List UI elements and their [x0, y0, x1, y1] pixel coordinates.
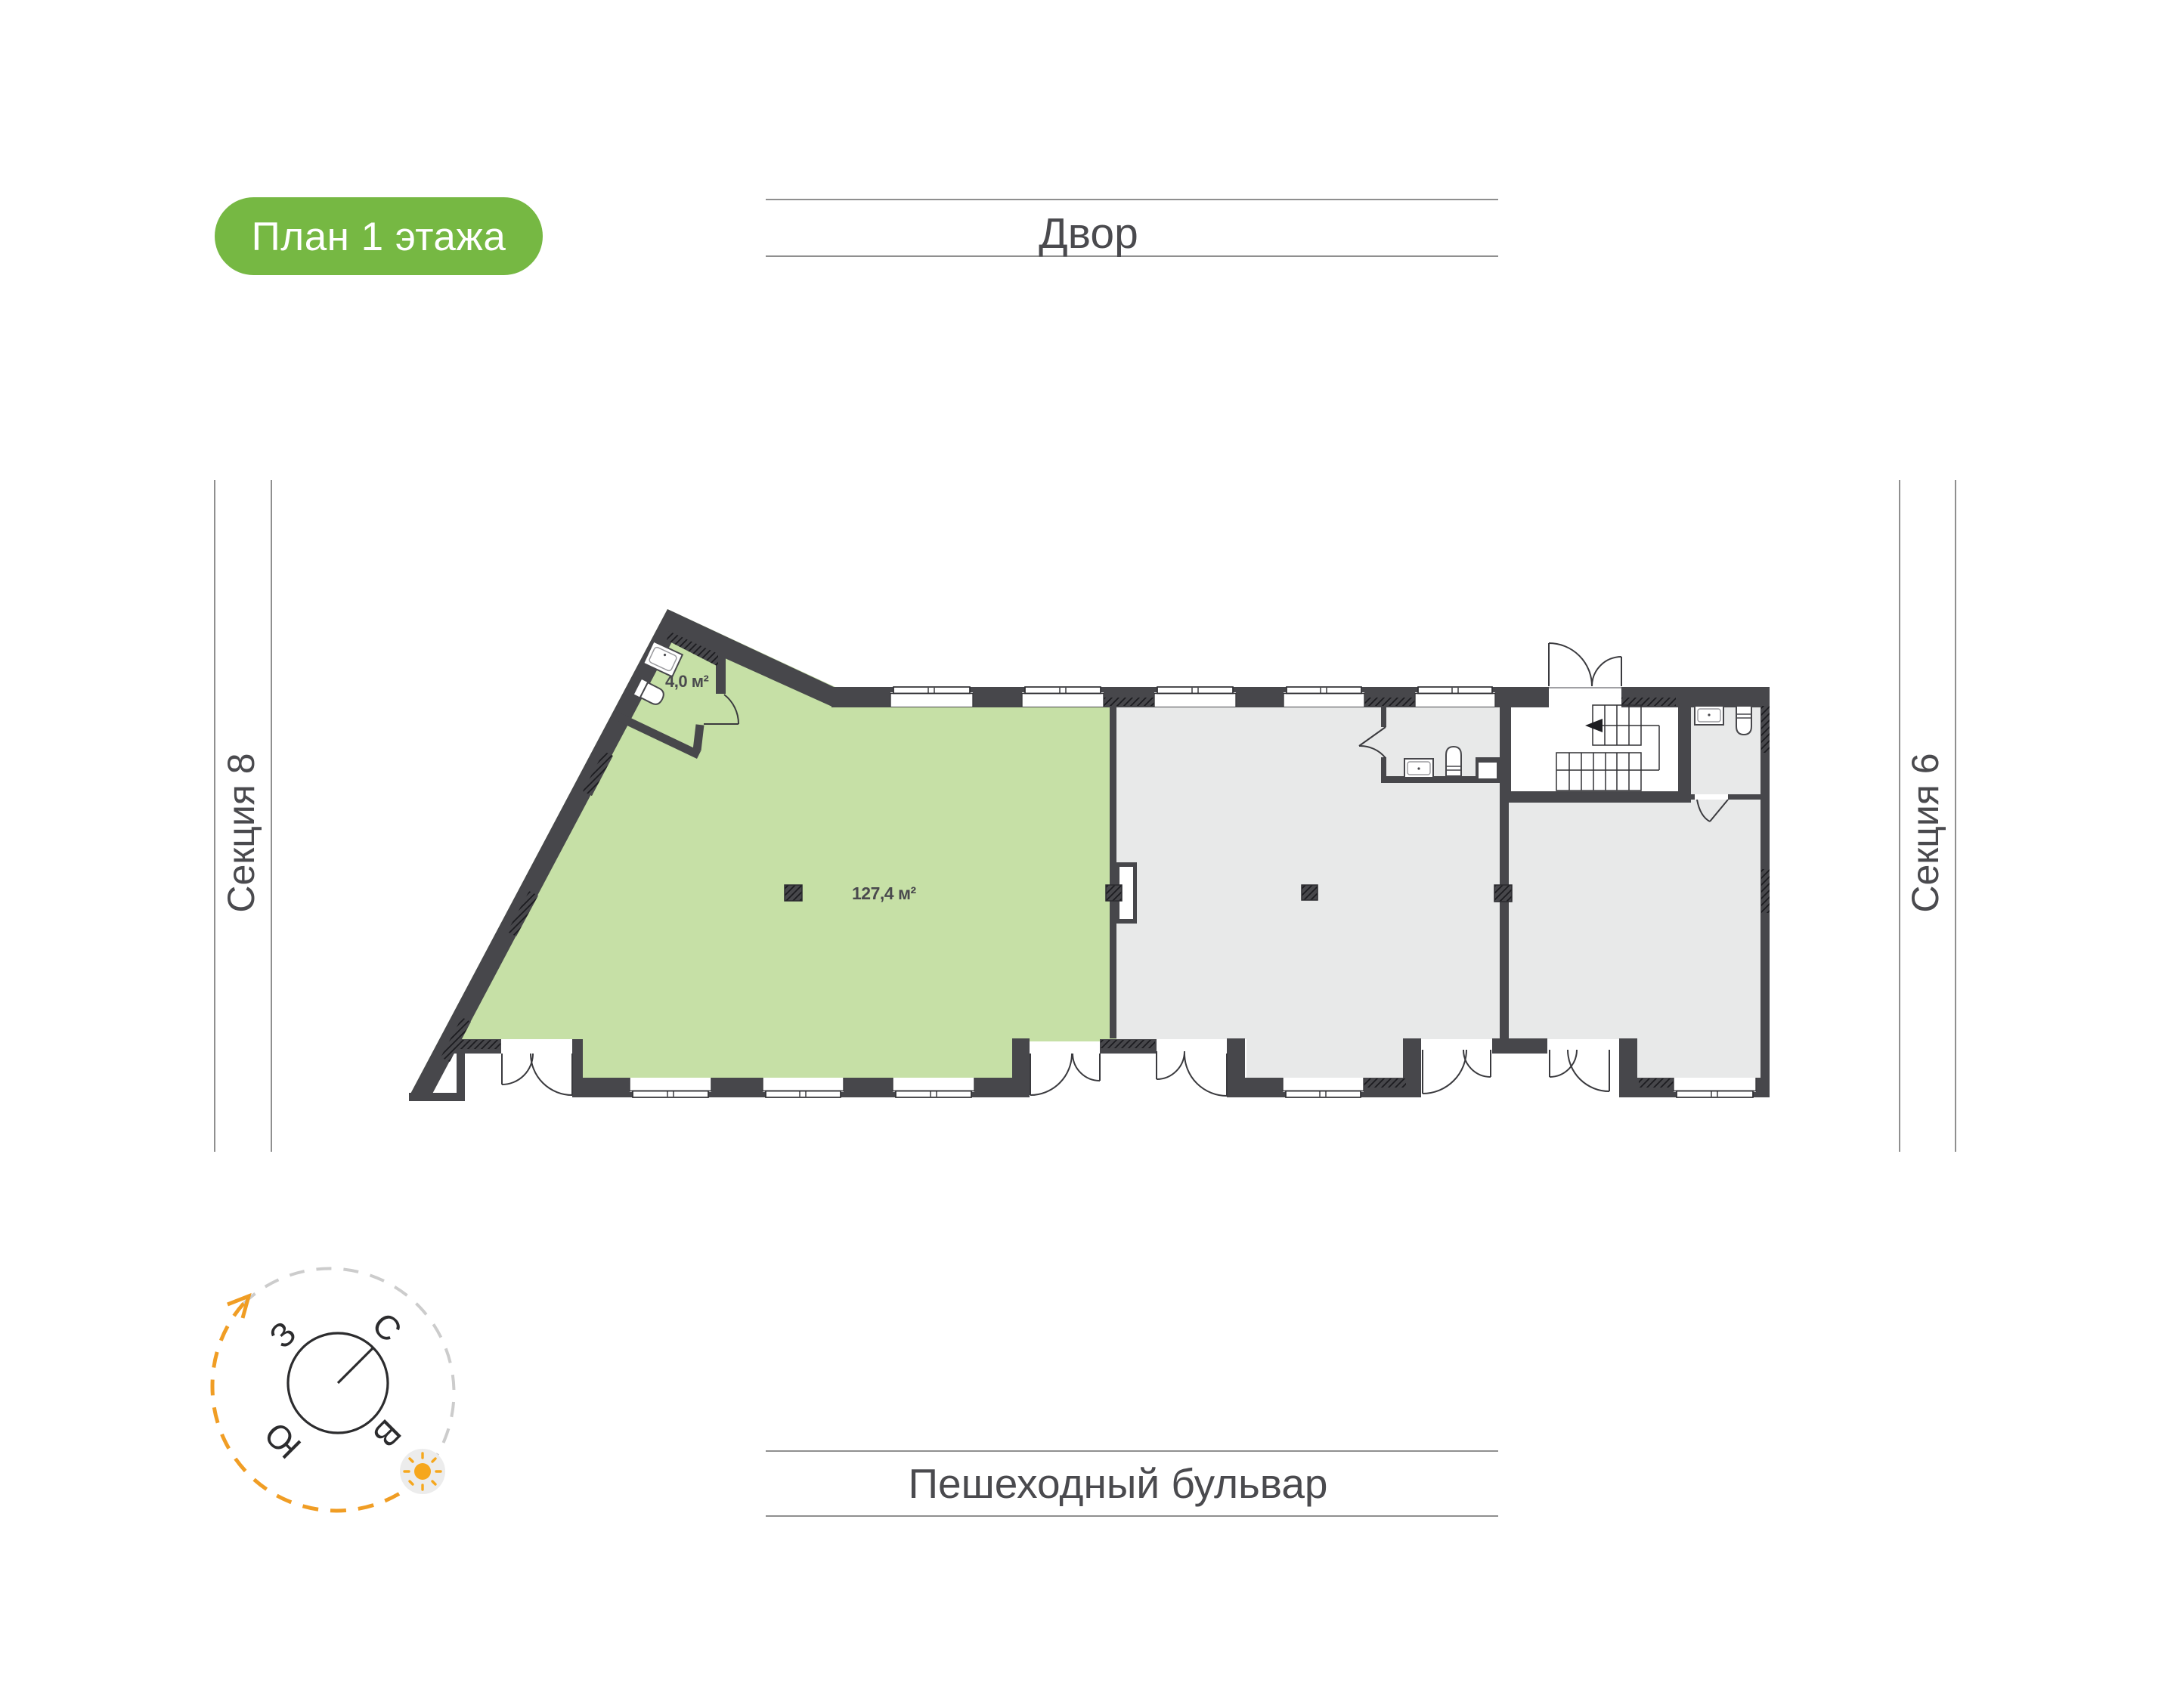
svg-text:Ю: Ю	[257, 1415, 308, 1466]
svg-text:З: З	[262, 1313, 303, 1355]
svg-text:План 1 этажа: План 1 этажа	[252, 215, 506, 259]
svg-text:Секция 8: Секция 8	[220, 753, 262, 912]
svg-text:С: С	[364, 1304, 409, 1349]
svg-text:Секция 6: Секция 6	[1904, 753, 1946, 912]
svg-text:Двор: Двор	[1039, 209, 1138, 258]
svg-text:4,0 м²: 4,0 м²	[665, 672, 708, 691]
svg-text:Пешеходный бульвар: Пешеходный бульвар	[909, 1460, 1328, 1507]
svg-text:127,4 м²: 127,4 м²	[852, 883, 916, 903]
